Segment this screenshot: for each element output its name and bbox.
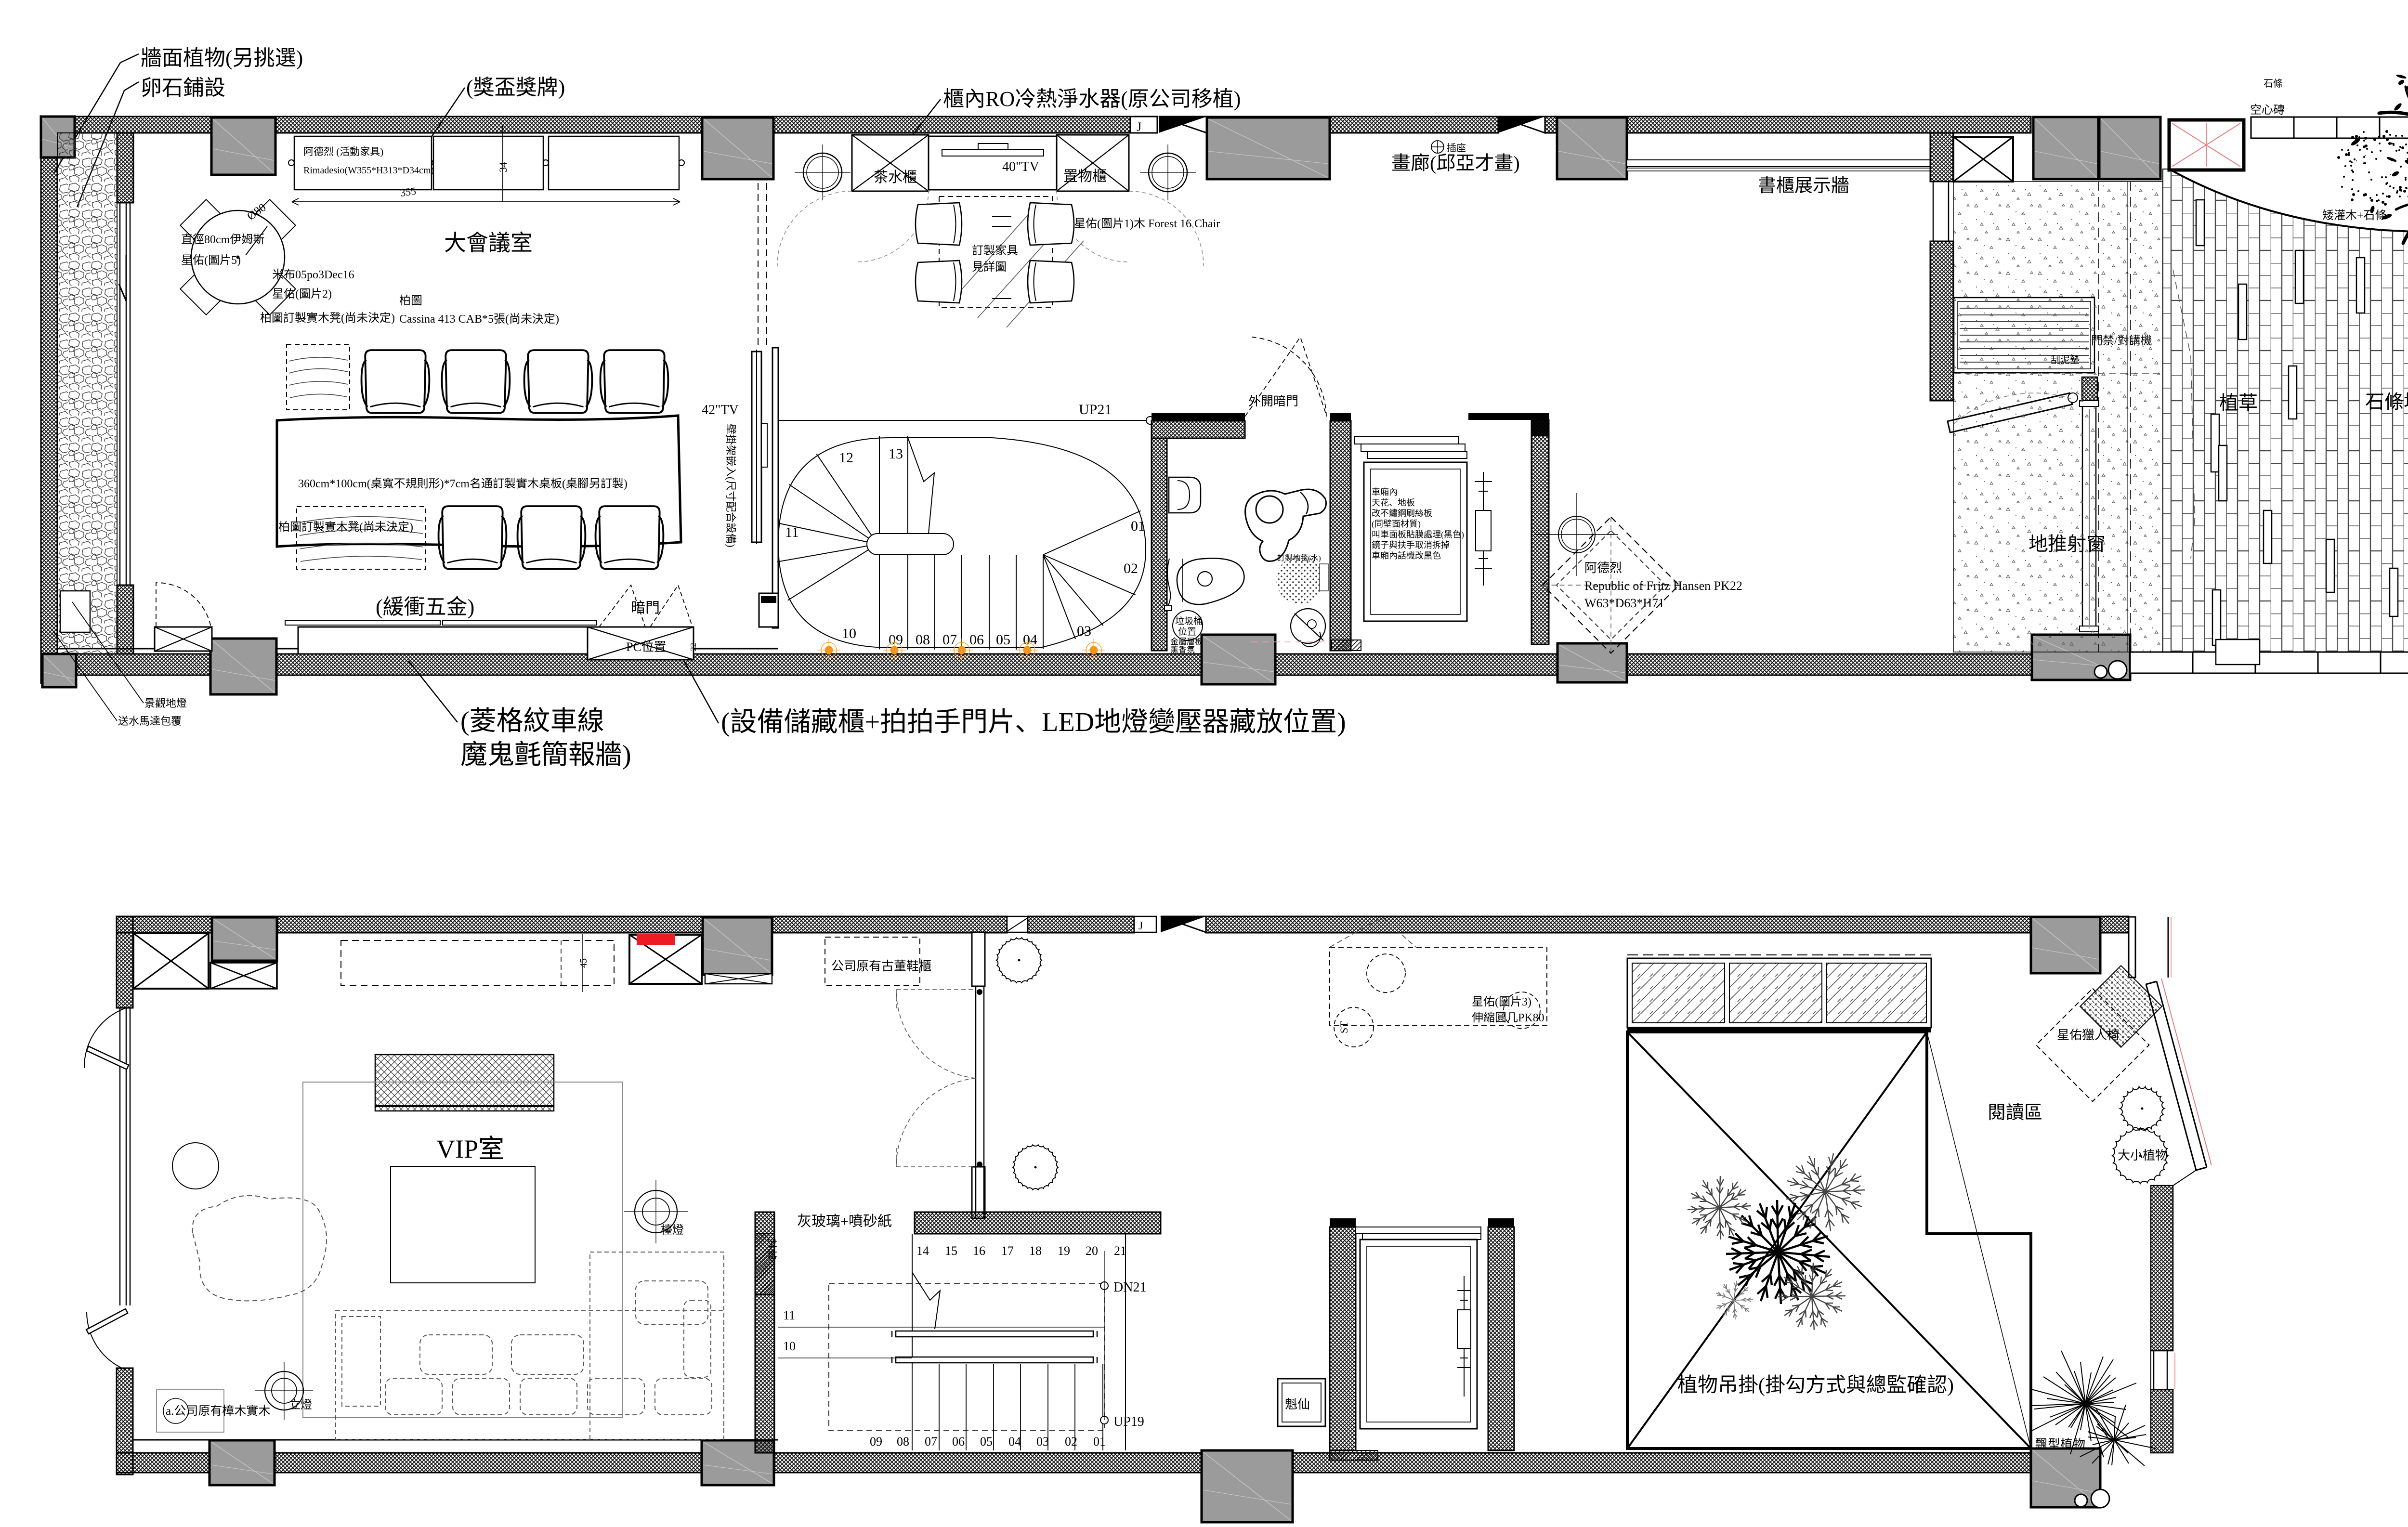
- svg-text:14: 14: [916, 1244, 929, 1258]
- svg-text:壁掛架嵌入(尺寸配合設備): 壁掛架嵌入(尺寸配合設備): [725, 424, 737, 548]
- svg-text:09: 09: [870, 1435, 882, 1449]
- svg-text:訂製家具: 訂製家具: [972, 244, 1018, 257]
- svg-text:(同壁面材質): (同壁面材質): [1372, 519, 1421, 529]
- svg-text:04: 04: [1008, 1435, 1021, 1449]
- svg-text:大會議室: 大會議室: [444, 231, 533, 255]
- svg-text:355: 355: [399, 185, 417, 199]
- svg-text:03: 03: [1077, 623, 1091, 639]
- svg-text:ST: ST: [1338, 1021, 1350, 1033]
- svg-text:(緩衝五金): (緩衝五金): [376, 595, 474, 619]
- svg-text:星佑(圖片1)木 Forest 16 Chair: 星佑(圖片1)木 Forest 16 Chair: [1074, 217, 1220, 230]
- svg-text:01: 01: [1093, 1435, 1106, 1449]
- svg-text:空心磚: 空心磚: [2250, 104, 2285, 117]
- svg-text:07: 07: [942, 632, 957, 648]
- svg-text:08: 08: [897, 1435, 909, 1449]
- svg-text:17: 17: [1001, 1244, 1014, 1258]
- svg-text:立燈: 立燈: [289, 1398, 312, 1411]
- svg-text:01: 01: [1131, 518, 1145, 534]
- svg-text:42"TV: 42"TV: [702, 403, 739, 418]
- svg-text:VIP室: VIP室: [436, 1135, 504, 1163]
- svg-text:茶水櫃: 茶水櫃: [874, 170, 917, 185]
- svg-text:魔鬼氈簡報牆): 魔鬼氈簡報牆): [460, 740, 631, 770]
- svg-text:飄型植物: 飄型植物: [2035, 1437, 2085, 1451]
- svg-text:07: 07: [925, 1435, 937, 1449]
- svg-text:(菱格紋車線: (菱格紋車線: [460, 706, 604, 736]
- svg-text:16: 16: [973, 1244, 985, 1258]
- svg-text:景觀地燈: 景觀地燈: [144, 697, 187, 709]
- svg-text:垃圾桶: 垃圾桶: [1175, 616, 1203, 626]
- svg-text:11: 11: [785, 524, 799, 540]
- svg-text:掉: 掉: [766, 1250, 777, 1260]
- svg-text:03: 03: [1036, 1435, 1049, 1449]
- svg-text:畫廊(邱亞才畫): 畫廊(邱亞才畫): [1391, 152, 1520, 174]
- svg-text:Republic of Fritz Hansen PK22: Republic of Fritz Hansen PK22: [1584, 579, 1742, 593]
- svg-text:置物櫃: 置物櫃: [1063, 169, 1107, 184]
- svg-text:柏圖訂製實木凳(尚未決定): 柏圖訂製實木凳(尚未決定): [260, 312, 395, 325]
- svg-text:DN21: DN21: [1113, 1280, 1146, 1295]
- svg-text:灰玻璃+噴砂紙: 灰玻璃+噴砂紙: [797, 1214, 892, 1229]
- svg-text:J: J: [1137, 120, 1141, 134]
- svg-text:星佑(圖片3): 星佑(圖片3): [1472, 995, 1531, 1008]
- svg-text:櫃內RO冷熱淨水器(原公司移植): 櫃內RO冷熱淨水器(原公司移植): [943, 87, 1241, 111]
- svg-text:改不鏽鋼刷絲板: 改不鏽鋼刷絲板: [1372, 509, 1432, 518]
- svg-text:矮灌木+石條: 矮灌木+石條: [2322, 209, 2387, 222]
- svg-text:J: J: [1139, 920, 1143, 932]
- svg-text:星佑(圖片5): 星佑(圖片5): [181, 254, 241, 267]
- svg-text:石條: 石條: [2264, 78, 2283, 89]
- svg-text:植草: 植草: [2219, 392, 2258, 414]
- svg-text:18: 18: [1029, 1244, 1042, 1258]
- svg-text:10: 10: [783, 1339, 796, 1353]
- svg-text:08: 08: [916, 632, 930, 648]
- svg-text:06: 06: [969, 632, 984, 648]
- svg-text:阿德烈: 阿德烈: [1584, 561, 1622, 575]
- svg-text:34: 34: [497, 162, 509, 172]
- svg-text:360cm*100cm(桌寬不規則形)*7cm名通訂製實木桌: 360cm*100cm(桌寬不規則形)*7cm名通訂製實木桌板(桌腳另訂製): [298, 477, 628, 490]
- svg-text:W63*D63*H71: W63*D63*H71: [1584, 596, 1664, 610]
- svg-text:暗門: 暗門: [631, 600, 660, 616]
- svg-text:車廂內: 車廂內: [1372, 487, 1398, 497]
- svg-text:書櫃展示牆: 書櫃展示牆: [1758, 176, 1849, 196]
- svg-text:插座: 插座: [1447, 143, 1466, 154]
- svg-text:薰香氛: 薰香氛: [1170, 645, 1195, 654]
- svg-text:卵石鋪設: 卵石鋪設: [141, 76, 225, 100]
- svg-text:06: 06: [952, 1435, 965, 1449]
- svg-text:UP19: UP19: [1113, 1414, 1144, 1429]
- svg-text:13: 13: [889, 446, 903, 462]
- svg-text:魁仙: 魁仙: [1285, 1397, 1310, 1411]
- svg-text:柏圖訂製實木凳(尚未決定): 柏圖訂製實木凳(尚未決定): [278, 521, 413, 534]
- svg-text:19: 19: [1058, 1244, 1070, 1258]
- svg-text:外開暗門: 外開暗門: [1248, 394, 1298, 408]
- svg-text:09: 09: [889, 632, 903, 648]
- svg-text:(設備儲藏櫃+拍拍手門片、LED地燈變壓器藏放位置): (設備儲藏櫃+拍拍手門片、LED地燈變壓器藏放位置): [721, 707, 1346, 737]
- svg-text:阿德烈 (活動家具): 阿德烈 (活動家具): [303, 146, 383, 157]
- svg-text:05: 05: [996, 632, 1010, 648]
- svg-text:02: 02: [1065, 1435, 1077, 1449]
- svg-text:鏡子與扶手取消拆掉: 鏡子與扶手取消拆掉: [1372, 540, 1450, 550]
- svg-text:大小植物: 大小植物: [2118, 1149, 2168, 1162]
- svg-text:Cassina 413 CAB*5張(尚未決定): Cassina 413 CAB*5張(尚未決定): [399, 313, 559, 326]
- svg-text:車廂內話機改黑色: 車廂內話機改黑色: [1372, 551, 1441, 561]
- svg-text:米布05po3Dec16: 米布05po3Dec16: [272, 268, 354, 281]
- svg-text:公司原有古董鞋櫃: 公司原有古董鞋櫃: [831, 959, 931, 973]
- svg-text:訂製地毯(水): 訂製地毯(水): [1277, 554, 1321, 562]
- svg-text:柏圖: 柏圖: [399, 294, 422, 307]
- svg-text:天花、地板: 天花、地板: [1372, 498, 1415, 508]
- svg-text:檯燈: 檯燈: [661, 1224, 684, 1237]
- svg-text:40"TV: 40"TV: [1002, 159, 1039, 174]
- svg-text:PC位置: PC位置: [626, 640, 667, 654]
- svg-text:封: 封: [766, 1239, 777, 1248]
- svg-text:11: 11: [783, 1308, 795, 1322]
- svg-text:植物吊掛(掛勾方式與總監確認): 植物吊掛(掛勾方式與總監確認): [1677, 1374, 1954, 1396]
- svg-text:21: 21: [1114, 1244, 1126, 1258]
- svg-text:叫車面板貼膜處理(黑色): 叫車面板貼膜處理(黑色): [1372, 530, 1464, 540]
- svg-text:星佑獵人椅: 星佑獵人椅: [2057, 1028, 2120, 1042]
- svg-text:04: 04: [1023, 632, 1037, 648]
- svg-text:直徑80cm伊姆斯: 直徑80cm伊姆斯: [181, 233, 264, 246]
- svg-text:45: 45: [578, 958, 589, 968]
- svg-text:10: 10: [842, 626, 856, 641]
- svg-text:石條地坪: 石條地坪: [2365, 391, 2408, 413]
- svg-text:星佑(圖片2): 星佑(圖片2): [272, 287, 332, 300]
- svg-text:a.公司原有樟木實木: a.公司原有樟木實木: [166, 1404, 270, 1418]
- svg-text:22: 22: [689, 643, 698, 651]
- svg-text:05: 05: [980, 1435, 993, 1449]
- svg-text:位置: 位置: [1178, 626, 1196, 637]
- svg-text:UP21: UP21: [1079, 402, 1112, 418]
- svg-text:牆面植物(另挑選): 牆面植物(另挑選): [141, 46, 303, 70]
- svg-text:02: 02: [1124, 561, 1138, 576]
- svg-text:閱讀區: 閱讀區: [1988, 1103, 2042, 1123]
- svg-text:見詳圖: 見詳圖: [972, 261, 1007, 274]
- svg-text:送水馬達包覆: 送水馬達包覆: [118, 715, 182, 727]
- svg-text:Rimadesio(W355*H313*D34cm): Rimadesio(W355*H313*D34cm): [303, 165, 434, 176]
- svg-text:12: 12: [839, 450, 853, 466]
- svg-text:20: 20: [1086, 1244, 1098, 1258]
- svg-text:15: 15: [945, 1244, 957, 1258]
- svg-text:伸縮圓几PK80: 伸縮圓几PK80: [1472, 1011, 1544, 1024]
- svg-text:(獎盃獎牌): (獎盃獎牌): [466, 76, 565, 99]
